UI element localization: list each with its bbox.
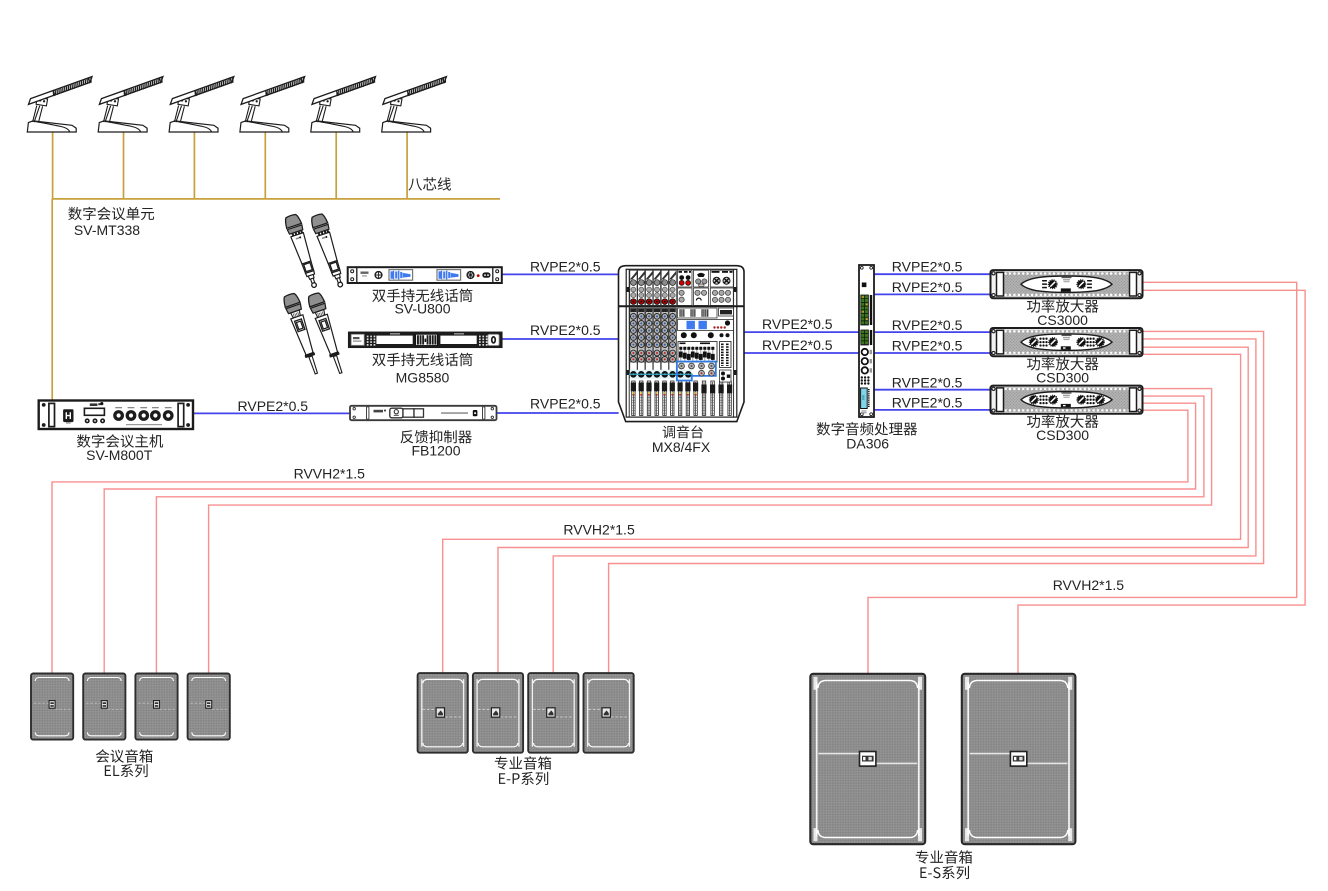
svg-text:RVPE2*0.5: RVPE2*0.5 <box>762 337 833 353</box>
svg-text:RVPE2*0.5: RVPE2*0.5 <box>892 338 963 354</box>
svg-text:SV-M800T: SV-M800T <box>86 447 153 463</box>
svg-text:DA306: DA306 <box>846 435 889 451</box>
svg-text:SV-U800: SV-U800 <box>394 300 450 316</box>
svg-text:RVPE2*0.5: RVPE2*0.5 <box>892 259 963 275</box>
svg-text:RVPE2*0.5: RVPE2*0.5 <box>530 259 601 275</box>
svg-text:RVVH2*1.5: RVVH2*1.5 <box>1053 577 1125 593</box>
svg-text:RVVH2*1.5: RVVH2*1.5 <box>294 465 366 481</box>
svg-text:MG8580: MG8580 <box>396 370 450 386</box>
svg-text:RVPE2*0.5: RVPE2*0.5 <box>892 374 963 390</box>
svg-text:FB1200: FB1200 <box>411 443 460 459</box>
svg-text:MX8/4FX: MX8/4FX <box>652 439 711 455</box>
svg-text:RVPE2*0.5: RVPE2*0.5 <box>530 322 601 338</box>
svg-text:RVPE2*0.5: RVPE2*0.5 <box>762 316 833 332</box>
svg-text:RVPE2*0.5: RVPE2*0.5 <box>892 395 963 411</box>
svg-text:SV-MT338: SV-MT338 <box>74 222 140 238</box>
svg-text:CSD300: CSD300 <box>1036 427 1089 443</box>
svg-text:RVPE2*0.5: RVPE2*0.5 <box>892 317 963 333</box>
svg-text:RVPE2*0.5: RVPE2*0.5 <box>238 398 309 414</box>
svg-text:CSD300: CSD300 <box>1036 370 1089 386</box>
svg-text:RVPE2*0.5: RVPE2*0.5 <box>892 279 963 295</box>
svg-text:RVVH2*1.5: RVVH2*1.5 <box>563 521 635 537</box>
svg-text:CS3000: CS3000 <box>1037 312 1088 328</box>
svg-text:RVPE2*0.5: RVPE2*0.5 <box>530 396 601 412</box>
